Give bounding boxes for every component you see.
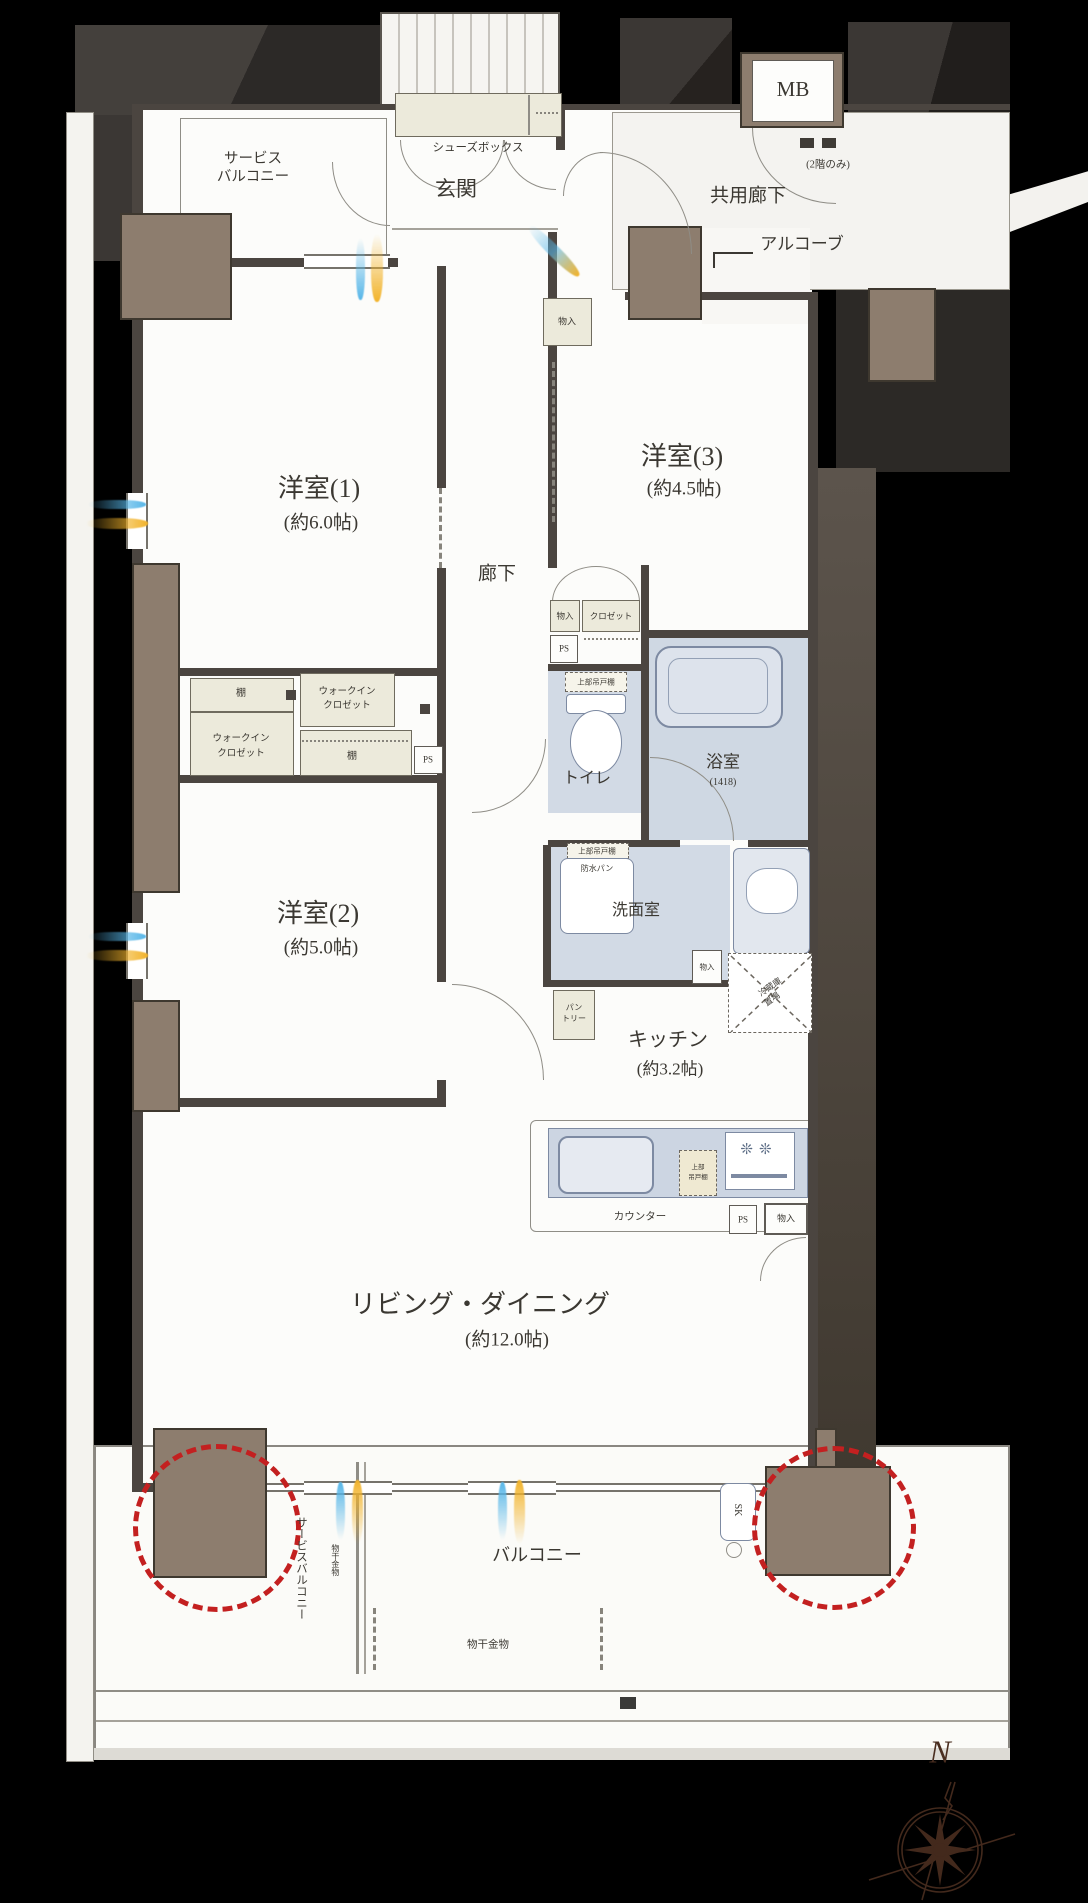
bedroom3-storage-label: 物入	[558, 317, 576, 328]
shoe-box	[395, 93, 562, 137]
highlight-circle-left	[133, 1444, 301, 1612]
laundry-hardware-label: 物干金物	[467, 1640, 509, 1653]
second-floor-marks	[800, 138, 814, 148]
walkin-left-label-2: クロゼット	[217, 749, 265, 761]
walkin-right-label-2: クロゼット	[323, 701, 371, 713]
service-balcony-top-label-2: バルコニー	[217, 169, 289, 187]
airflow-yellow-living2	[514, 1480, 525, 1544]
window-living-gap1	[304, 1481, 392, 1495]
wall-bedroom2-bottom	[143, 1098, 446, 1107]
walkin-closet-right	[300, 673, 395, 727]
walkin-left-label-1: ウォークイン	[212, 734, 269, 746]
bedroom2-label: 洋室(2)	[277, 898, 359, 930]
wall-toilet-bath-divider	[641, 565, 649, 845]
pantry-label-2: トリー	[562, 1014, 586, 1024]
vanity-sink	[746, 868, 798, 914]
floor-plan: ❊❊ MB (2階のみ) 共用廊下 アルコーブ サービス バルコニー シューズボ…	[0, 0, 1088, 1903]
toilet-bowl	[570, 710, 622, 774]
hall-closet-label: クロゼット	[590, 611, 633, 621]
pillar-west-mid-b	[132, 1000, 180, 1112]
airflow-yellow-bed2	[86, 950, 148, 961]
ps-kitchen-label: PS	[738, 1215, 748, 1226]
shelf-left-label: 棚	[236, 688, 246, 700]
shoe-box-divider	[528, 95, 530, 135]
balcony-rail-line2	[96, 1720, 1008, 1722]
slop-sink-label: SK	[731, 1504, 743, 1517]
compass-rose-icon	[855, 1762, 1025, 1902]
bedroom1-label: 洋室(1)	[278, 473, 360, 505]
laundry-hardware-vertical-label: 物干金物	[330, 1544, 340, 1576]
wall-toilet-top	[548, 664, 648, 671]
balcony-label: バルコニー	[492, 1545, 582, 1567]
alcove-leader-v	[713, 252, 715, 268]
airflow-blue-living1	[336, 1482, 345, 1540]
hall-storage-label: 物入	[556, 611, 573, 621]
bedroom1-sliding-door	[439, 488, 442, 568]
wall-sb-stub	[388, 258, 398, 267]
second-floor-only-label: (2階のみ)	[806, 160, 850, 173]
shelf-mark-right	[420, 704, 430, 714]
slop-sink-hose	[726, 1542, 742, 1558]
kitchen-label: キッチン	[628, 1028, 708, 1052]
wall-bedroom1-east	[437, 266, 446, 488]
pantry-label-1: パン	[566, 1003, 582, 1013]
counter-label: カウンター	[614, 1212, 667, 1225]
airflow-blue-bed2	[88, 932, 146, 941]
wall-washroom-west	[543, 845, 551, 987]
wall-bath-top	[641, 630, 808, 638]
alcove-label: アルコーブ	[760, 235, 843, 256]
ps-hall-label: PS	[559, 644, 569, 655]
shared-corridor-label: 共用廊下	[710, 184, 786, 207]
mb-label: MB	[777, 77, 810, 103]
walkin-right-label-1: ウォークイン	[318, 687, 375, 699]
window-living-gap2	[468, 1481, 556, 1495]
east-outer-band	[818, 468, 876, 1472]
shelf-right-label: 棚	[347, 751, 357, 763]
highlight-circle-right	[752, 1446, 916, 1610]
toilet-label: トイレ	[563, 769, 611, 789]
airflow-yellow-top	[371, 234, 383, 302]
washroom-label: 洗面室	[612, 901, 660, 921]
bedroom3-label: 洋室(3)	[641, 441, 723, 473]
kitchen-size-label: (約3.2帖)	[637, 1060, 704, 1081]
kitchen-storage-label: 物入	[777, 1214, 795, 1225]
alcove-leader-h	[713, 252, 753, 254]
pillar-northwest	[120, 213, 232, 320]
airflow-blue-bed1	[88, 500, 146, 509]
bath-label: 浴室	[706, 753, 740, 774]
kitchen-upper-cabinet-box	[679, 1150, 717, 1196]
second-floor-marks-2	[822, 138, 836, 148]
toilet-upper-cabinet-label: 上部吊戸棚	[577, 677, 615, 686]
washroom-upper-cabinet-label: 上部吊戸棚	[578, 846, 616, 855]
service-balcony-top-label-1: サービス	[224, 151, 282, 169]
pillar-west-mid-a	[132, 563, 180, 893]
balcony-small-mark	[620, 1697, 636, 1709]
balcony-outer-band	[94, 1748, 1010, 1760]
wall-storage-bottom	[143, 775, 437, 783]
stove-burners-icon: ❊❊	[740, 1141, 777, 1159]
service-balcony-bottom-label: サービスバルコニー	[294, 1516, 308, 1620]
shoe-box-label: シューズボックス	[432, 141, 523, 155]
waterproof-pan-label: 防水パン	[581, 864, 613, 874]
airflow-blue-living2	[498, 1482, 507, 1540]
bath-size-label: (1418)	[710, 777, 737, 789]
balcony-rail-line1	[96, 1690, 1008, 1692]
kitchen-upper-cabinet-label-1: 上部	[692, 1164, 705, 1172]
pillar-east-corridor	[868, 288, 936, 382]
wall-top	[132, 104, 1010, 110]
ps-storage-label: PS	[423, 755, 433, 766]
shelf-rail-right	[302, 740, 408, 742]
bedroom3-sliding-door	[552, 362, 555, 522]
airflow-yellow-bed1	[86, 518, 148, 529]
living-label: リビング・ダイニング	[350, 1289, 610, 1321]
kitchen-upper-cabinet-label-2: 吊戸棚	[688, 1174, 708, 1182]
hallway-label: 廊下	[478, 562, 516, 585]
hall-closet-rail	[584, 638, 638, 640]
laundry-bracket-mark-right	[600, 1608, 603, 1670]
bedroom1-size-label: (約6.0帖)	[284, 511, 358, 534]
stove-grill-line	[731, 1174, 787, 1178]
bedroom3-size-label: (約4.5帖)	[647, 477, 721, 500]
airflow-yellow-living1	[352, 1480, 363, 1544]
shoe-box-dots	[536, 112, 558, 114]
airflow-blue-top	[356, 238, 365, 300]
bathtub-inner	[668, 658, 768, 714]
laundry-bracket-mark-left	[373, 1608, 376, 1670]
wall-bath-bottom-b	[748, 840, 808, 847]
kitchen-sink	[558, 1136, 654, 1194]
washroom-storage-label: 物入	[700, 962, 715, 971]
wall-bedroom2-east	[437, 568, 446, 982]
living-size-label: (約12.0帖)	[465, 1328, 549, 1351]
shelf-mark-left	[286, 690, 296, 700]
bedroom2-size-label: (約5.0帖)	[284, 936, 358, 959]
genkan-label: 玄関	[435, 177, 477, 203]
